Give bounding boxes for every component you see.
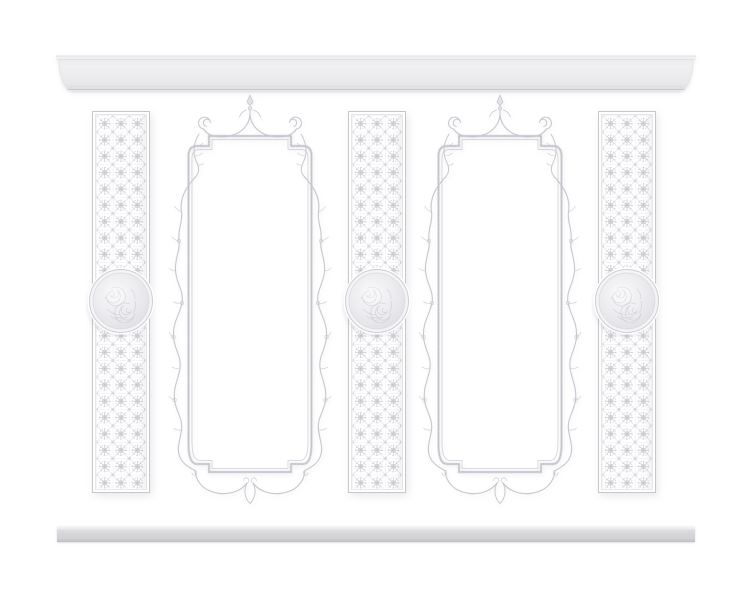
crown-cornice-moulding [55,53,697,93]
floral-medallion-right [591,265,663,337]
wall-decor-render [0,0,751,600]
baseboard-moulding [57,526,695,542]
floral-medallion-left [85,265,157,337]
fretwork-panel-left [92,111,150,493]
floral-medallion-center [341,265,413,337]
scroll-frame-right [418,92,582,506]
fretwork-panel-center [348,111,406,493]
fretwork-panel-right [598,111,656,493]
scroll-frame-left [168,92,332,506]
